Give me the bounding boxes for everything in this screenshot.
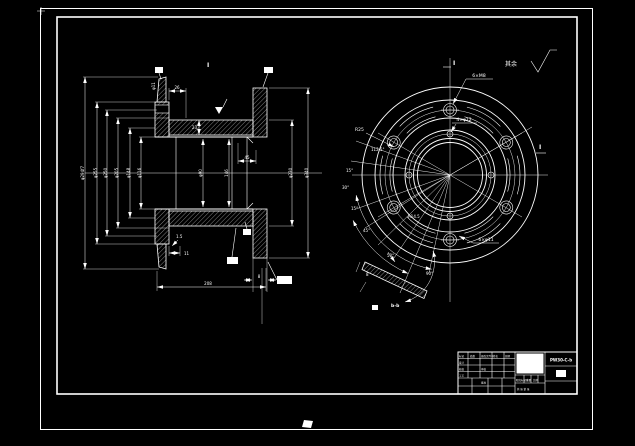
dim-label: 1.5 — [176, 234, 183, 239]
detail-section: 50° 8 90° b-b — [356, 251, 434, 310]
dim-label: φ11 — [151, 82, 156, 90]
dim-label: φ230 — [288, 167, 293, 178]
tb-mid-cell: 重量 — [526, 378, 532, 382]
roughness-symbol — [215, 99, 227, 114]
dim-label: 23 — [192, 125, 198, 130]
sheet-borders — [37, 7, 593, 430]
surface-note-text: 其余 — [505, 60, 517, 68]
dim-label: 146 — [224, 169, 229, 177]
tb-cell: 工艺 — [459, 374, 465, 378]
dim-label: φ250 — [103, 167, 108, 178]
section-view: φ294f7 φ255 φ250 φ205 φ148 φ116 φ230 φ34… — [80, 62, 322, 324]
dim-label: 26 — [174, 85, 180, 90]
title-block: 标记 处数 更改文件号 签名 日期 设计 校核 工艺 审核 批准 阶段标记 重量… — [458, 352, 577, 394]
flange-hole — [156, 105, 169, 113]
detail-angle-sweep: 90° — [426, 271, 433, 276]
detail-angle-pos: 50° — [387, 253, 394, 258]
rim-radius-note: R14.5 — [408, 214, 420, 219]
tb-mid-cell: 阶段标记 — [516, 378, 527, 382]
dim-label: φ255 — [93, 167, 98, 178]
drawing-number: PW30-C-b — [550, 358, 572, 363]
tb-cell: 审核 — [481, 367, 487, 371]
section-mark-right: I — [539, 144, 541, 151]
angle-label: 45° — [363, 228, 370, 233]
surface-note: 其余 — [505, 50, 557, 72]
dim-label: φ116 — [137, 167, 142, 178]
sheet-center-mark — [302, 420, 313, 428]
view-label: I — [207, 62, 209, 69]
dim-label: 8 — [258, 274, 261, 279]
dim-label: 11 — [184, 251, 190, 256]
tb-cell: 设计 — [459, 361, 465, 365]
tb-cell: 批准 — [481, 381, 487, 385]
angle-label: 15° — [351, 206, 358, 211]
cad-drawing: φ294f7 φ255 φ250 φ205 φ148 φ116 φ230 φ34… — [0, 0, 635, 446]
dim-label: φ90 — [198, 169, 203, 177]
tb-cell: 日期 — [505, 354, 511, 358]
dim-label: φ205 — [114, 167, 119, 178]
dim-label: 45 — [244, 155, 250, 160]
part-name-cell — [517, 354, 544, 374]
dim-label: φ294f7 — [80, 165, 85, 180]
section-arrow-mark — [372, 305, 378, 310]
tb-sheet-note: 共 张 第 张 — [517, 387, 530, 391]
inner-dimensions: φ90 146 45 23 26 φ11 — [151, 82, 256, 207]
section-mark-top: I — [453, 60, 455, 67]
angle-label: 112.5° — [371, 147, 384, 152]
detail-name: b-b — [391, 303, 400, 309]
radius-note: R25 — [355, 127, 364, 133]
tb-cell: 校核 — [459, 367, 465, 371]
dim-label: φ340 — [304, 167, 309, 178]
tb-cell: 标记 — [459, 354, 465, 358]
angle-label: 15° — [346, 168, 353, 173]
hole-note: 4×φ12 — [456, 117, 471, 123]
tb-cell: 签名 — [493, 354, 499, 358]
dim-label: 208 — [204, 281, 212, 286]
dim-label: φ148 — [126, 167, 131, 178]
cad-viewport[interactable]: φ294f7 φ255 φ250 φ205 φ148 φ116 φ230 φ34… — [0, 0, 635, 446]
tb-cell: 处数 — [470, 354, 476, 358]
rim-hole-note: 6×φ11 — [478, 237, 493, 243]
tb-mid-cell: 比例 — [533, 378, 539, 382]
bolt-note: 6×M8 — [472, 73, 486, 79]
angle-label: 30° — [342, 185, 349, 190]
title-block-stamp — [556, 370, 566, 377]
front-centerlines — [351, 58, 548, 302]
roughness-check-icon — [531, 50, 557, 72]
